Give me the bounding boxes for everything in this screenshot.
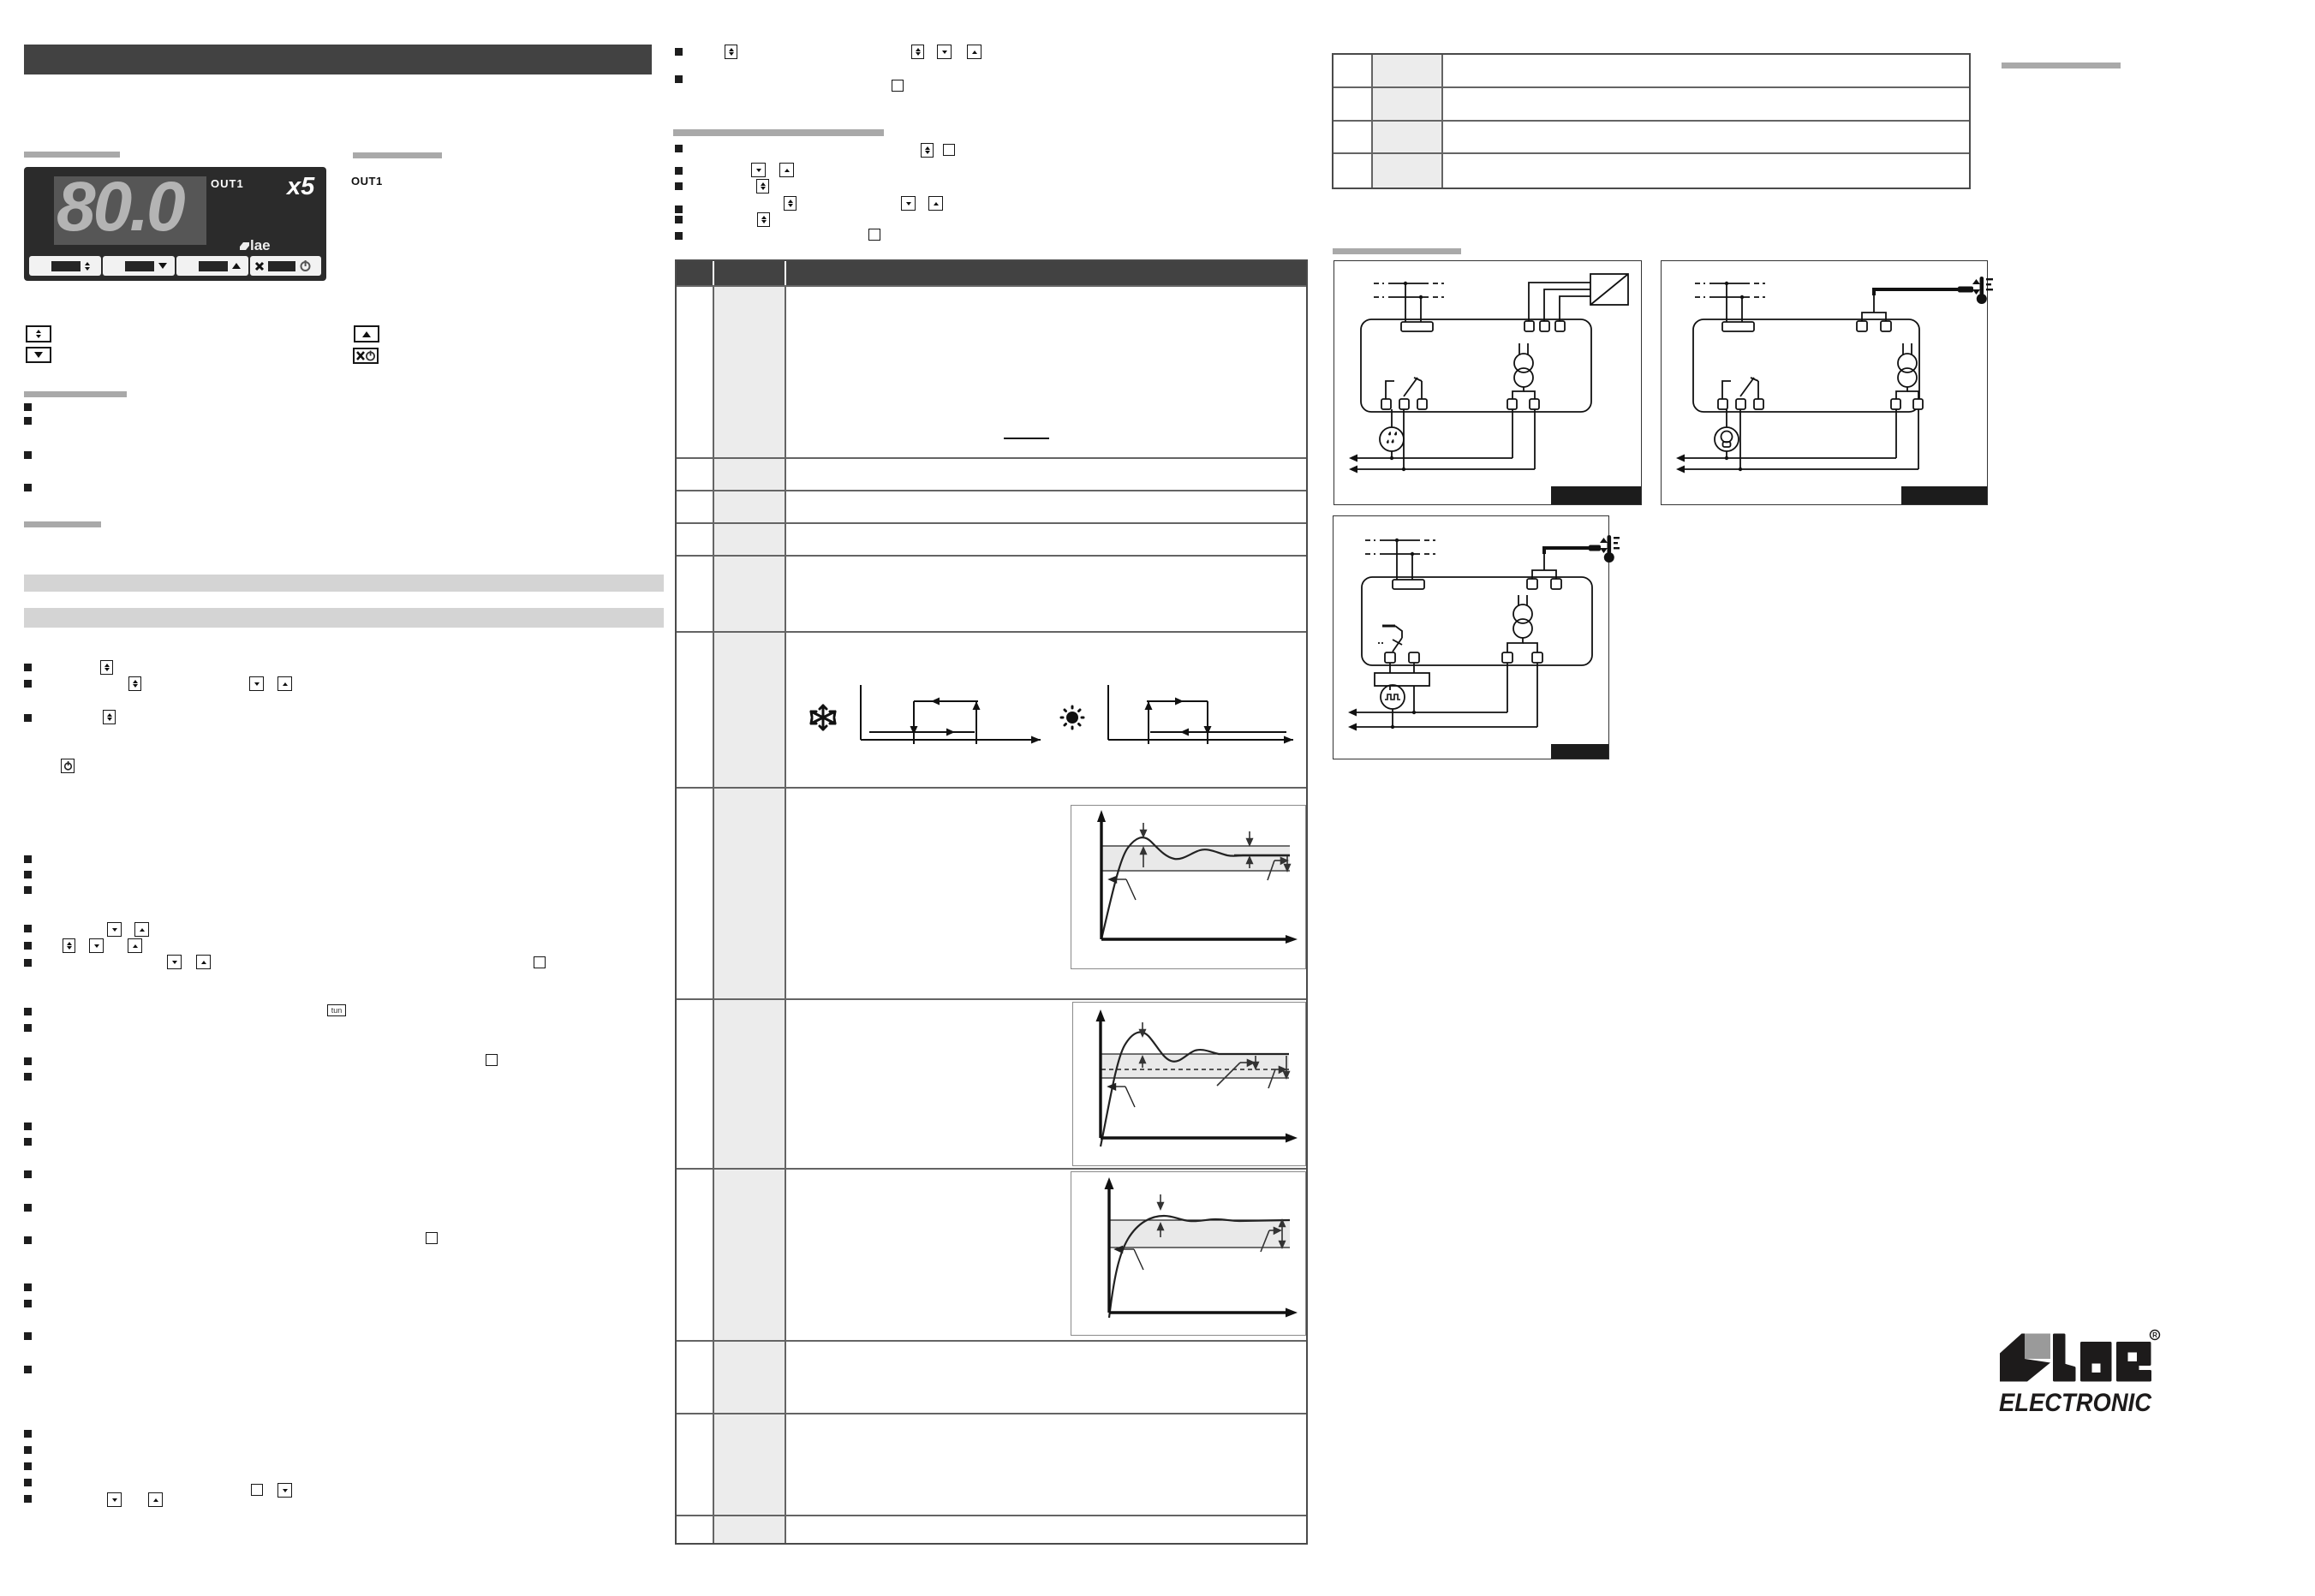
svg-text:ELECTRONIC: ELECTRONIC	[1999, 1389, 2152, 1417]
svg-text:R: R	[2152, 1331, 2157, 1339]
